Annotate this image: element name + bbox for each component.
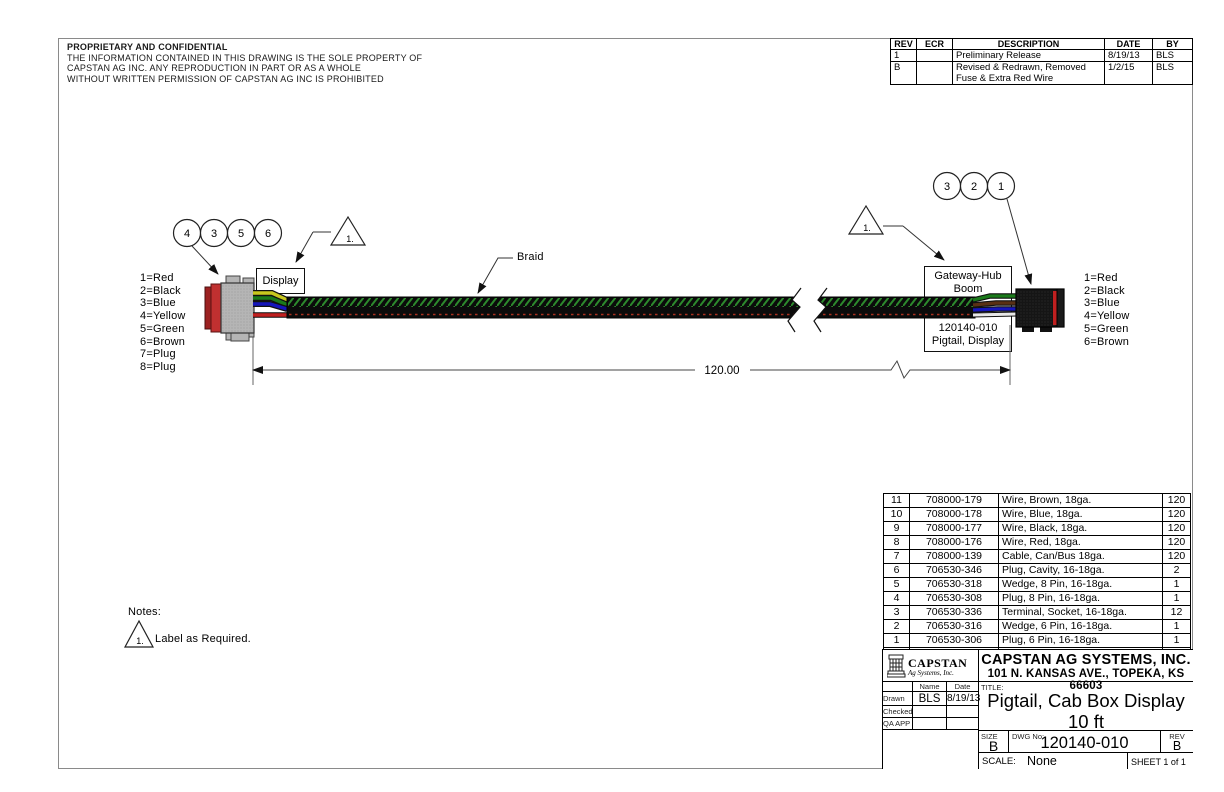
checked-label: Checked xyxy=(883,706,913,718)
dwg-number: 120140-010 xyxy=(1009,734,1160,753)
bom-row: 5706530-318Wedge, 8 Pin, 16-18ga.1 xyxy=(884,578,1191,592)
by-col-header: BY xyxy=(1153,39,1193,50)
rev-value: B xyxy=(891,62,917,85)
drawn-label: Drawn xyxy=(883,692,913,706)
bom-row: 6706530-346Plug, Cavity, 16-18ga.2 xyxy=(884,564,1191,578)
bom-row: 2706530-316Wedge, 6 Pin, 16-18ga.1 xyxy=(884,620,1191,634)
date-col-header: DATE xyxy=(1105,39,1153,50)
bom-row: 4706530-308Plug, 8 Pin, 16-18ga.1 xyxy=(884,592,1191,606)
date-header: Date xyxy=(947,682,978,692)
legend-item: 4=Yellow xyxy=(140,310,186,323)
description-value: Preliminary Release xyxy=(953,50,1105,62)
name-header: Name xyxy=(913,682,947,692)
company-name: CAPSTAN AG SYSTEMS, INC. xyxy=(979,652,1193,668)
rev-cell: REV B xyxy=(1161,731,1193,753)
display-label: Display xyxy=(262,275,298,287)
ecr-value xyxy=(917,62,953,85)
drawing-title: Pigtail, Cab Box Display 10 ft xyxy=(979,690,1193,732)
legend-item: 6=Brown xyxy=(140,336,186,349)
description-value: Revised & Redrawn, Removed Fuse & Extra … xyxy=(953,62,1105,85)
left-wire-legend: 1=Red 2=Black 3=Blue 4=Yellow 5=Green 6=… xyxy=(140,272,186,374)
bom-row: 11708000-179Wire, Brown, 18ga.120 xyxy=(884,494,1191,508)
sheet-cell: SHEET 1 of 1 xyxy=(1128,753,1193,769)
drawing-sheet: PROPRIETARY AND CONFIDENTIAL THE INFORMA… xyxy=(0,0,1224,792)
legend-item: 8=Plug xyxy=(140,361,186,374)
legend-item: 1=Red xyxy=(140,272,186,285)
sheet-value: SHEET 1 of 1 xyxy=(1131,757,1186,767)
scale-cell: SCALE: None xyxy=(979,753,1128,769)
date-value: 1/2/15 xyxy=(1105,62,1153,85)
proprietary-title: PROPRIETARY AND CONFIDENTIAL xyxy=(67,42,457,53)
size-cell: SIZE B xyxy=(979,731,1009,753)
logo-subtitle: Ag Systems, Inc. xyxy=(908,669,954,677)
drawn-date: 8/19/13 xyxy=(947,692,978,706)
legend-item: 3=Blue xyxy=(140,297,186,310)
proprietary-line3: WITHOUT WRITTEN PERMISSION OF CAPSTAN AG… xyxy=(67,74,457,85)
company-cell: CAPSTAN AG SYSTEMS, INC. 101 N. KANSAS A… xyxy=(979,650,1193,682)
revision-header-row: REV ECR DESCRIPTION DATE BY xyxy=(891,39,1193,50)
ecr-col-header: ECR xyxy=(917,39,953,50)
right-wire-legend: 1=Red 2=Black 3=Blue 4=Yellow 5=Green 6=… xyxy=(1084,272,1130,348)
rev-col-header: REV xyxy=(891,39,917,50)
bom-row: 3706530-336Terminal, Socket, 16-18ga.12 xyxy=(884,606,1191,620)
legend-item: 3=Blue xyxy=(1084,297,1130,310)
legend-item: 7=Plug xyxy=(140,348,186,361)
bom-row: 8708000-176Wire, Red, 18ga.120 xyxy=(884,536,1191,550)
ecr-value xyxy=(917,50,953,62)
description-col-header: DESCRIPTION xyxy=(953,39,1105,50)
proprietary-line2: CAPSTAN AG INC. ANY REPRODUCTION IN PART… xyxy=(67,63,457,74)
dwg-cell: DWG No: 120140-010 xyxy=(1009,731,1161,753)
revision-row-1: 1 Preliminary Release 8/19/13 BLS xyxy=(891,50,1193,62)
by-value: BLS xyxy=(1153,62,1193,85)
revision-row-2: B Revised & Redrawn, Removed Fuse & Extr… xyxy=(891,62,1193,85)
bom-row: 1706530-306Plug, 6 Pin, 16-18ga.1 xyxy=(884,634,1191,648)
notes-heading: Notes: xyxy=(128,606,161,618)
legend-item: 2=Black xyxy=(140,285,186,298)
title-cell: TITLE: Pigtail, Cab Box Display 10 ft xyxy=(979,682,1193,731)
legend-item: 2=Black xyxy=(1084,285,1130,298)
proprietary-notice: PROPRIETARY AND CONFIDENTIAL THE INFORMA… xyxy=(67,42,457,84)
gateway-label: Gateway-Hub Boom xyxy=(925,270,1011,296)
bom-table: 11708000-179Wire, Brown, 18ga.120 107080… xyxy=(883,493,1191,662)
size-value: B xyxy=(979,738,1008,754)
approvals-column: Name Date Drawn BLS 8/19/13 Checked QA A… xyxy=(883,682,979,769)
display-label-box: Display xyxy=(256,268,305,294)
note-1-text: Label as Required. xyxy=(155,633,251,645)
legend-item: 1=Red xyxy=(1084,272,1130,285)
scale-value: None xyxy=(1027,754,1057,768)
legend-item: 4=Yellow xyxy=(1084,310,1130,323)
date-value: 8/19/13 xyxy=(1105,50,1153,62)
legend-item: 5=Green xyxy=(140,323,186,336)
capstan-building-icon xyxy=(887,654,907,678)
bom-row: 7708000-139Cable, Can/Bus 18ga.120 xyxy=(884,550,1191,564)
rev-value: B xyxy=(1161,739,1193,753)
drawn-name: BLS xyxy=(913,692,947,706)
by-value: BLS xyxy=(1153,50,1193,62)
rev-value: 1 xyxy=(891,50,917,62)
revision-table: REV ECR DESCRIPTION DATE BY 1 Preliminar… xyxy=(890,38,1193,85)
braid-label: Braid xyxy=(517,251,544,263)
proprietary-line1: THE INFORMATION CONTAINED IN THIS DRAWIN… xyxy=(67,53,457,64)
bom-row: 10708000-178Wire, Blue, 18ga.120 xyxy=(884,508,1191,522)
qa-label: QA APP xyxy=(883,718,913,730)
logo-cell: CAPSTAN Ag Systems, Inc. xyxy=(883,650,979,682)
legend-item: 5=Green xyxy=(1084,323,1130,336)
gateway-label-box: Gateway-Hub Boom 120140-010 Pigtail, Dis… xyxy=(924,266,1012,352)
pigtail-label: 120140-010 Pigtail, Display xyxy=(925,322,1011,348)
bom-row: 9708000-177Wire, Black, 18ga.120 xyxy=(884,522,1191,536)
title-block: CAPSTAN Ag Systems, Inc. CAPSTAN AG SYST… xyxy=(882,649,1193,769)
legend-item: 6=Brown xyxy=(1084,336,1130,349)
